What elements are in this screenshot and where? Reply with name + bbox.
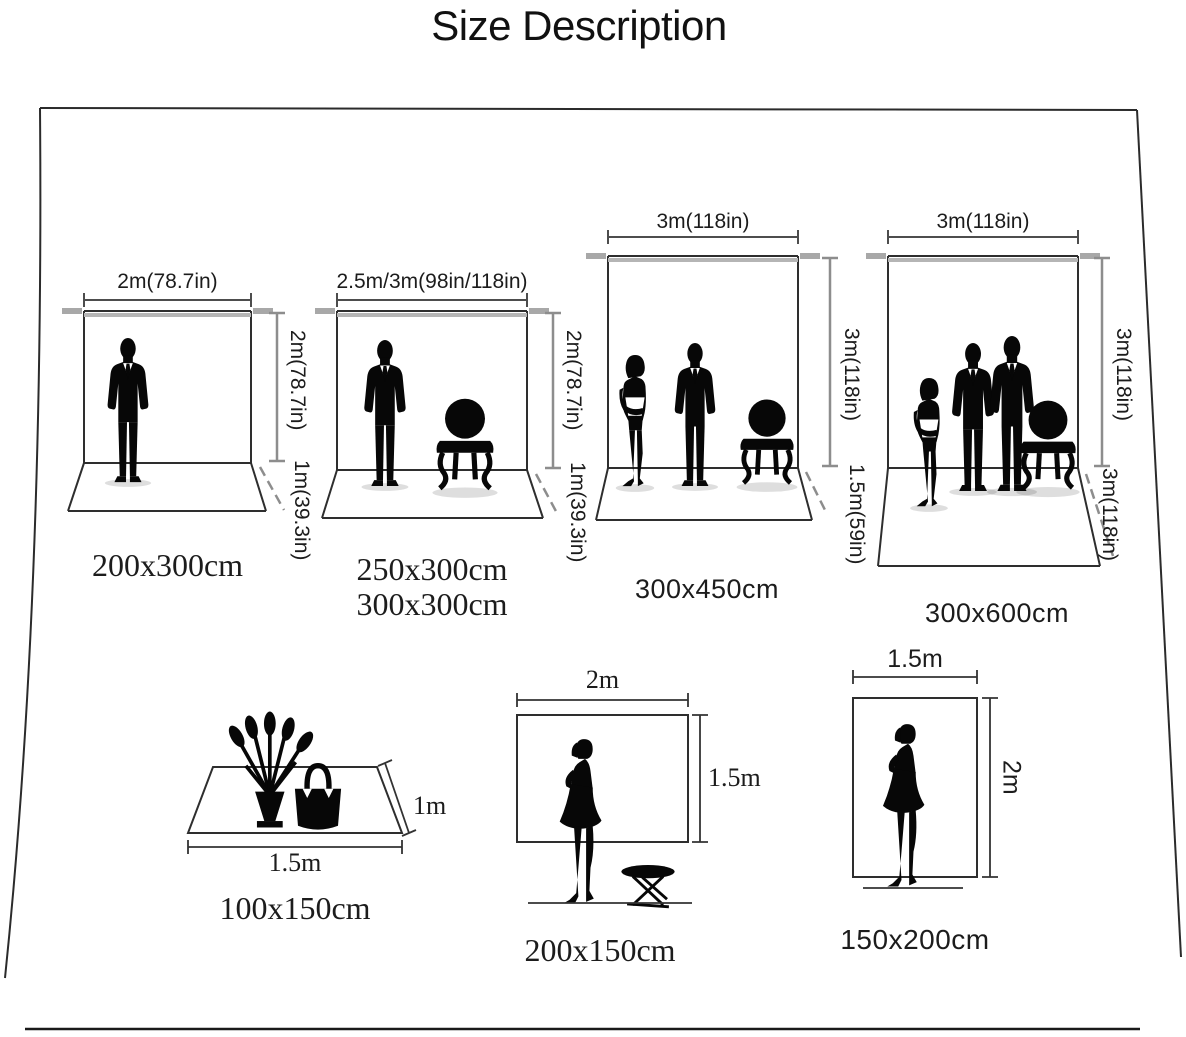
panel-300x450-size-label: 300x450cm [612,575,802,603]
woman-silhouette [616,355,655,492]
panel-300x600-size-label: 300x600cm [897,599,1097,627]
panel-100x150-size-label: 100x150cm [178,892,412,926]
panel-150x200-width-label: 1.5m [853,646,977,672]
panel-100x150 [188,712,416,854]
panel-200x150-height-label: 1.5m [708,764,761,791]
panel-300x600-width-label: 3m(118in) [888,211,1078,233]
height-measure [378,760,416,836]
crossbar-clamp-left [586,253,606,259]
width-measure [337,293,527,307]
man-silhouette [949,343,997,496]
floor-sweep [322,470,543,518]
floor-sweep [596,468,812,520]
diagram-graphics [0,0,1186,1037]
crossbar [84,313,251,317]
panel-300x600-height-label: 3m(118in) [1112,328,1134,421]
panel-200x150 [517,693,708,907]
panel-300x450-width-label: 3m(118in) [608,211,798,233]
width-measure [517,693,688,707]
handbag-silhouette [295,766,341,830]
panel-250x300-depth-label: 1m(39.3in) [566,462,588,562]
crossbar [608,258,798,262]
panel-300x600-depth-label: 3m(118in) [1098,468,1120,561]
woman-silhouette [910,378,948,512]
man-silhouette [361,340,408,491]
rug-outline [188,767,402,833]
wall-right-edge [1137,110,1181,957]
panel-300x300-size-label: 300x300cm [337,588,527,622]
height-measure [545,313,561,468]
size-description-infographic: Size Description [0,0,1186,1037]
height-measure [692,715,708,842]
panel-100x150-height-label: 1m [413,792,446,819]
chair-silhouette [1016,401,1079,497]
panel-200x300-width-label: 2m(78.7in) [84,271,251,293]
folding-stool-silhouette [621,865,674,907]
panel-300x450 [586,230,838,520]
panel-150x200-size-label: 150x200cm [813,925,1017,954]
panel-200x300-height-label: 2m(78.7in) [286,330,308,430]
panel-250x300-width-label: 2.5m/3m(98in/118in) [322,271,542,293]
height-measure [982,698,998,877]
panel-250x300-300x300 [315,293,561,518]
panel-250x300-height-label: 2m(78.7in) [562,330,584,430]
panel-300x600 [866,230,1113,566]
panel-250x300-size-label: 250x300cm [337,553,527,587]
crossbar-clamp-left [866,253,886,259]
crossbar [888,258,1078,262]
backdrop-rect [517,715,688,842]
panel-300x450-depth-label: 1.5m(59in) [845,464,867,564]
panel-100x150-width-label: 1.5m [188,849,402,876]
backdrop-frame [337,311,527,470]
man-silhouette [105,338,151,487]
panel-300x450-height-label: 3m(118in) [840,328,862,421]
floor-sweep [68,463,266,511]
wall-top-edge [40,108,1137,110]
height-measure [822,258,838,466]
wall-left-edge [5,108,40,978]
crossbar-clamp-left [62,308,82,314]
panel-200x150-width-label: 2m [517,666,688,693]
height-measure [269,313,285,461]
crossbar-clamp-left [315,308,335,314]
panel-200x300 [62,293,285,511]
panel-200x150-size-label: 200x150cm [505,934,695,968]
panel-150x200-height-label: 2m [998,760,1024,795]
width-measure [84,293,251,307]
chair-silhouette [737,399,798,491]
crossbar-clamp-right [800,253,820,259]
backdrop-frame [84,311,251,463]
chair-silhouette [432,399,497,498]
height-measure [1094,258,1110,466]
woman-dress-silhouette [560,739,602,903]
woman-dress-silhouette [883,724,924,886]
panel-200x300-size-label: 200x300cm [74,549,261,583]
crossbar [337,313,527,317]
panel-200x300-depth-label: 1m(39.3in) [290,460,312,560]
panel-150x200 [853,670,998,888]
